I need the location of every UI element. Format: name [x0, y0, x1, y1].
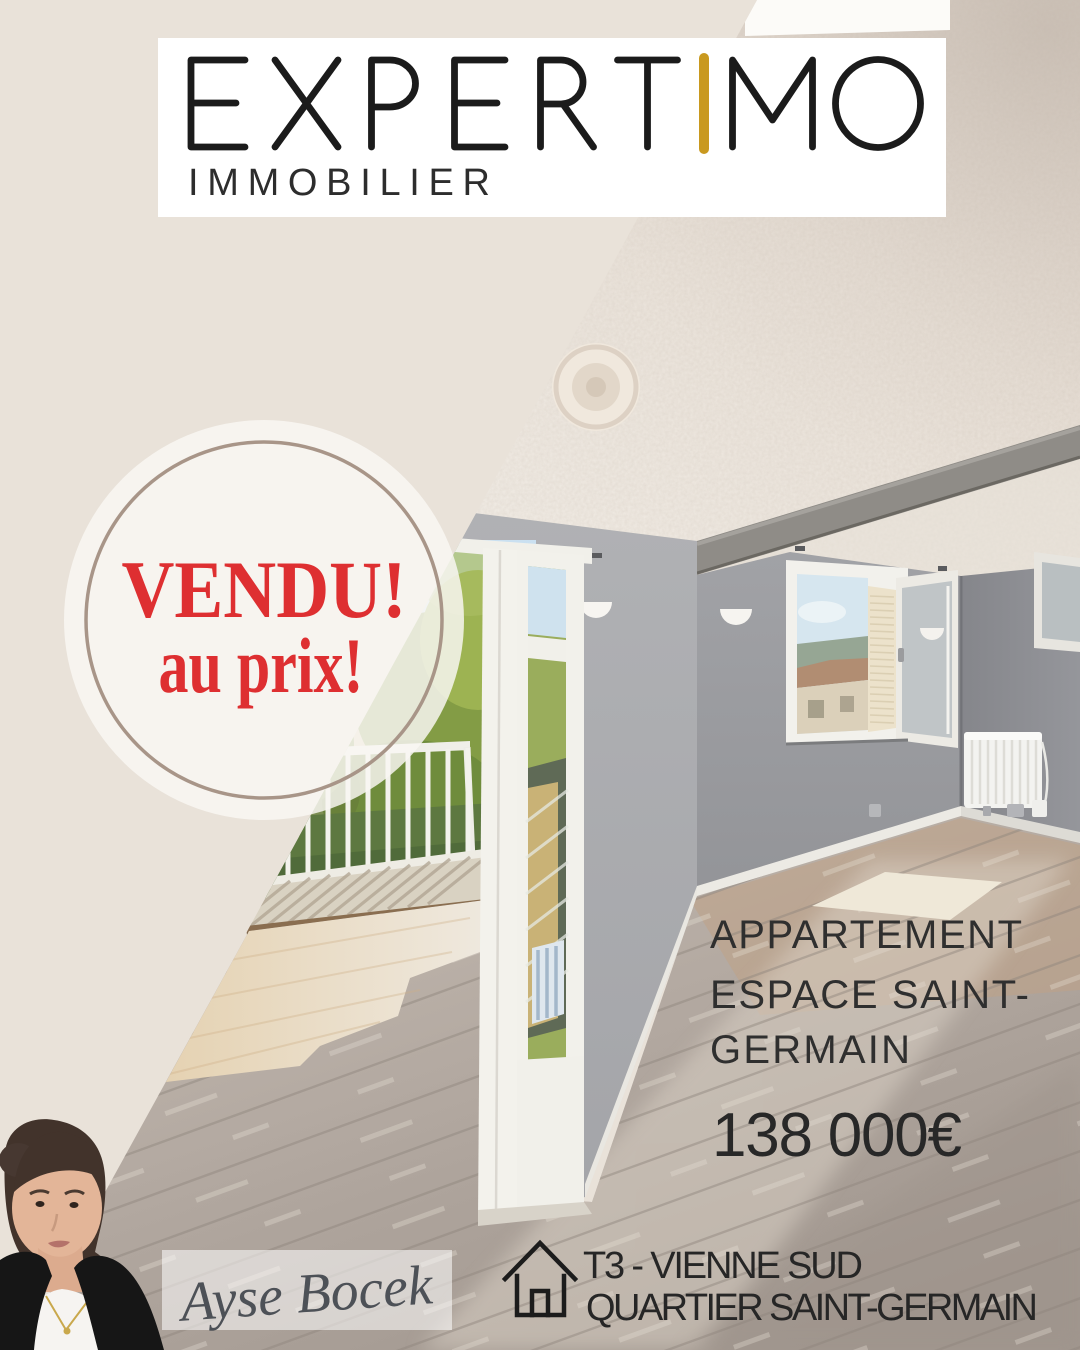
- svg-text:APPARTEMENT: APPARTEMENT: [710, 913, 1022, 957]
- svg-text:QUARTIER SAINT-GERMAIN: QUARTIER SAINT-GERMAIN: [586, 1287, 1038, 1329]
- svg-text:au prix!: au prix!: [159, 622, 364, 709]
- svg-text:T3 - VIENNE SUD: T3 - VIENNE SUD: [583, 1245, 863, 1287]
- svg-text:ESPACE SAINT-: ESPACE SAINT-: [710, 973, 1029, 1017]
- svg-text:IMMOBILIER: IMMOBILIER: [188, 162, 490, 204]
- svg-text:138 000€: 138 000€: [712, 1101, 962, 1170]
